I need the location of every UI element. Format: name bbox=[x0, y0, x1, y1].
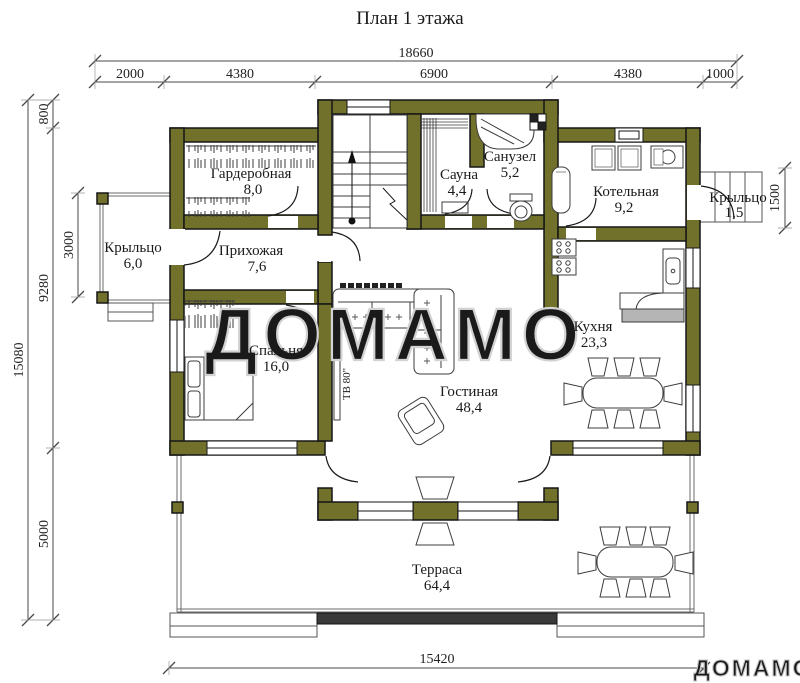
floor-plan-page: ДОМАМО Гардеробная 8,0 Сауна 4,4 Санузел… bbox=[0, 0, 800, 683]
window-bedroom-left bbox=[170, 320, 184, 372]
room-area-spalnya: 16,0 bbox=[263, 359, 289, 375]
dim-top-seg-1: 2000 bbox=[116, 67, 144, 82]
hall-living-door-arc bbox=[332, 232, 360, 261]
room-area-prihozhaya: 7,6 bbox=[248, 259, 267, 275]
watermark-corner: ДОМАМО bbox=[693, 655, 800, 681]
dim-right-porch: 1500 bbox=[768, 184, 783, 212]
corner-bathtub bbox=[476, 114, 534, 149]
room-label-spalnya: Спальня bbox=[249, 343, 303, 359]
room-label-kotelnaya: Котельная bbox=[593, 184, 659, 200]
dim-left-porch: 3000 bbox=[62, 231, 77, 259]
window-boiler-top bbox=[615, 128, 643, 142]
vent-shaft bbox=[530, 114, 546, 130]
armchair bbox=[396, 395, 446, 447]
boiler-unit bbox=[651, 146, 683, 168]
dim-top-seg-3: 6900 bbox=[420, 67, 448, 82]
room-label-porch-left: Крыльцо bbox=[104, 240, 161, 256]
window-stairs-top bbox=[347, 100, 390, 114]
window-bay-right bbox=[458, 502, 518, 520]
toilet bbox=[510, 194, 532, 221]
oven bbox=[552, 258, 576, 275]
porch-left-steps bbox=[108, 303, 153, 321]
kitchen-counter bbox=[620, 249, 684, 322]
room-label-gostinaya: Гостиная bbox=[440, 384, 498, 400]
staircase bbox=[333, 115, 407, 228]
room-area-kotelnaya: 9,2 bbox=[615, 200, 634, 216]
dim-left-5000: 5000 bbox=[37, 520, 52, 548]
terrace-door-left-arc bbox=[326, 456, 358, 482]
room-label-terrasa: Терраса bbox=[412, 562, 463, 578]
room-area-porch-left: 6,0 bbox=[124, 256, 143, 272]
tv-label: ТВ 80" bbox=[341, 368, 353, 400]
room-area-sauna: 4,4 bbox=[448, 183, 467, 199]
terrace-door-right-arc bbox=[518, 456, 550, 482]
room-area-kuhnya: 23,3 bbox=[581, 335, 607, 351]
window-bay-left bbox=[358, 502, 413, 520]
dim-top-seg-4: 4380 bbox=[614, 67, 642, 82]
dim-top-seg-2: 4380 bbox=[226, 67, 254, 82]
garderob-door-arc bbox=[268, 186, 298, 216]
room-area-sanuzel: 5,2 bbox=[501, 165, 520, 181]
window-kitchen-right-2 bbox=[686, 385, 700, 432]
dryer-box bbox=[618, 146, 641, 170]
room-area-porch-right: 1,5 bbox=[725, 205, 744, 221]
room-label-prihozhaya: Прихожая bbox=[219, 243, 283, 259]
washer-box bbox=[592, 146, 615, 170]
entry-door-arc bbox=[184, 231, 220, 265]
dim-left-800: 800 bbox=[37, 104, 52, 125]
window-bedroom-bottom bbox=[207, 441, 297, 455]
window-kitchen-bottom bbox=[573, 441, 663, 455]
dim-top-total: 18660 bbox=[399, 46, 434, 61]
water-heater bbox=[552, 167, 570, 213]
room-area-terrasa: 64,4 bbox=[424, 578, 451, 594]
terrace-dining-set bbox=[578, 527, 693, 597]
floor-plan-drawing: ДОМАМО Гардеробная 8,0 Сауна 4,4 Санузел… bbox=[0, 0, 800, 683]
room-label-garderobnaya: Гардеробная bbox=[211, 166, 292, 182]
watermark-center: ДОМАМО bbox=[205, 293, 586, 376]
window-kitchen-right-1 bbox=[686, 248, 700, 288]
tv-stand-shelf bbox=[340, 283, 402, 288]
dim-left-overall: 15080 bbox=[12, 343, 27, 378]
room-label-sanuzel: Санузел bbox=[484, 149, 537, 165]
room-label-porch-right: Крыльцо bbox=[709, 190, 766, 206]
room-area-garderobnaya: 8,0 bbox=[244, 182, 263, 198]
dim-left-9280: 9280 bbox=[37, 274, 52, 302]
dim-top-seg-5: 1000 bbox=[706, 67, 734, 82]
room-label-sauna: Сауна bbox=[440, 167, 478, 183]
stove bbox=[552, 239, 576, 256]
terrace-steps bbox=[170, 613, 704, 637]
dim-bottom-width: 15420 bbox=[420, 652, 455, 667]
room-label-kuhnya: Кухня bbox=[574, 319, 613, 335]
page-title: План 1 этажа bbox=[356, 8, 464, 29]
room-area-gostinaya: 48,4 bbox=[456, 400, 483, 416]
